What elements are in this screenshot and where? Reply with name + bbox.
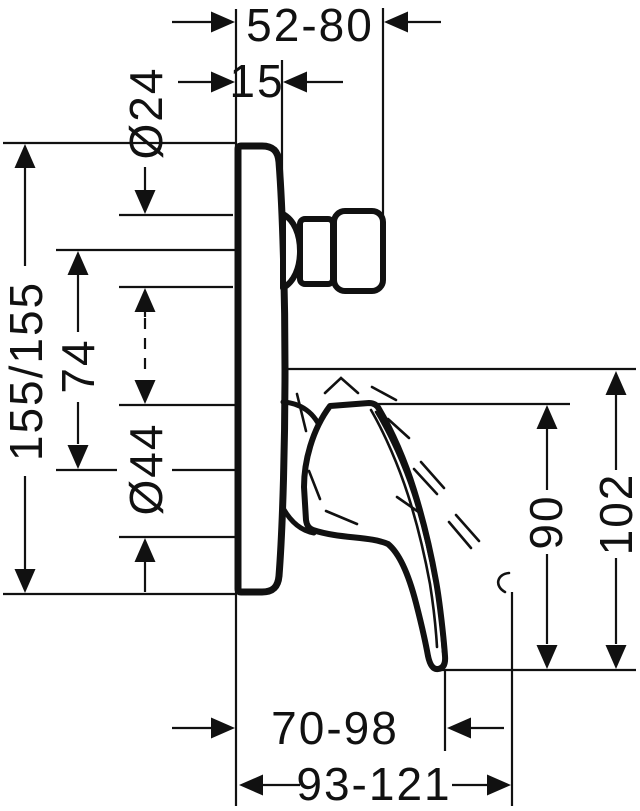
technical-drawing: 52-80 15 Ø24 155/155 74 Ø44 90 102 70-98… [0, 0, 640, 811]
dim-label-plate-height: 155/155 [0, 281, 52, 461]
wall-plate-profile [238, 146, 285, 592]
dim-label-tip-projection: 70-98 [271, 702, 399, 754]
fixture [238, 146, 445, 669]
dim-label-hub-diameter: Ø44 [120, 423, 172, 516]
dim-label-plate-thickness: 15 [229, 55, 284, 107]
dim-label-lever-overall-length: 102 [590, 473, 640, 556]
knob-cap [334, 211, 383, 291]
dim-label-knob-diameter: Ø24 [120, 67, 172, 160]
dim-label-lever-length: 90 [520, 494, 572, 549]
extension-lines [3, 8, 636, 806]
dim-label-knob-projection: 52-80 [246, 0, 374, 51]
knob-collar-ring [300, 219, 333, 284]
dim-label-max-projection: 93-121 [296, 758, 451, 810]
dim-label-center-distance: 74 [52, 338, 104, 393]
drawing-canvas: 52-80 15 Ø24 155/155 74 Ø44 90 102 70-98… [0, 0, 640, 811]
